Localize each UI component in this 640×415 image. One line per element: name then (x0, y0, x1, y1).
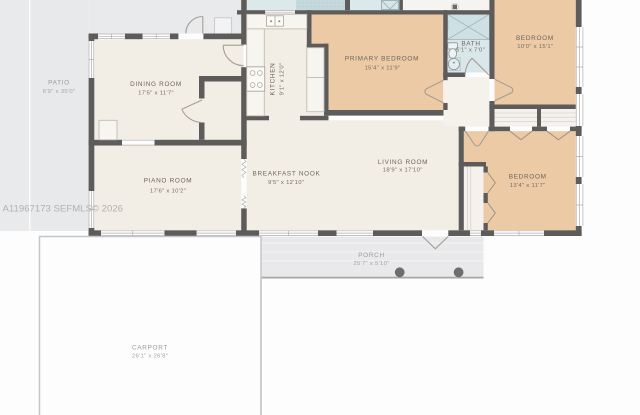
svg-text:10'0" x 15'1": 10'0" x 15'1" (517, 44, 553, 50)
svg-text:9'1" x 12'0": 9'1" x 12'0" (280, 63, 286, 96)
svg-text:BEDROOM: BEDROOM (509, 174, 547, 181)
svg-text:15'4" x 11'9": 15'4" x 11'9" (365, 65, 401, 71)
svg-text:DINING ROOM: DINING ROOM (130, 81, 182, 88)
svg-text:BEDROOM: BEDROOM (516, 35, 554, 42)
svg-text:26'1" x 26'8": 26'1" x 26'8" (132, 354, 168, 360)
svg-text:17'6" x 10'2": 17'6" x 10'2" (150, 189, 186, 195)
svg-text:PATIO: PATIO (48, 79, 70, 86)
svg-text:25'7" x 5'10": 25'7" x 5'10" (353, 261, 389, 267)
svg-text:A11967173 SEFMLS© 2026: A11967173 SEFMLS© 2026 (3, 204, 124, 215)
svg-text:9'5" x 12'10": 9'5" x 12'10" (268, 180, 304, 186)
svg-text:BREAKFAST NOOK: BREAKFAST NOOK (253, 170, 321, 177)
svg-text:PORCH: PORCH (358, 252, 385, 259)
svg-text:18'9" x 17'10": 18'9" x 17'10" (383, 168, 423, 174)
svg-text:KITCHEN: KITCHEN (270, 63, 277, 96)
svg-text:17'5" x 11'7": 17'5" x 11'7" (138, 91, 174, 97)
svg-text:5'1" x 7'0": 5'1" x 7'0" (456, 48, 485, 54)
svg-text:LIVING ROOM: LIVING ROOM (378, 159, 428, 166)
svg-text:PIANO ROOM: PIANO ROOM (144, 177, 193, 184)
svg-text:CARPORT: CARPORT (132, 345, 168, 352)
svg-text:PRIMARY BEDROOM: PRIMARY BEDROOM (345, 56, 419, 63)
svg-text:13'4" x 11'7": 13'4" x 11'7" (510, 183, 546, 189)
svg-text:BATH: BATH (461, 41, 480, 48)
svg-text:6'9" x 35'0": 6'9" x 35'0" (43, 89, 76, 95)
